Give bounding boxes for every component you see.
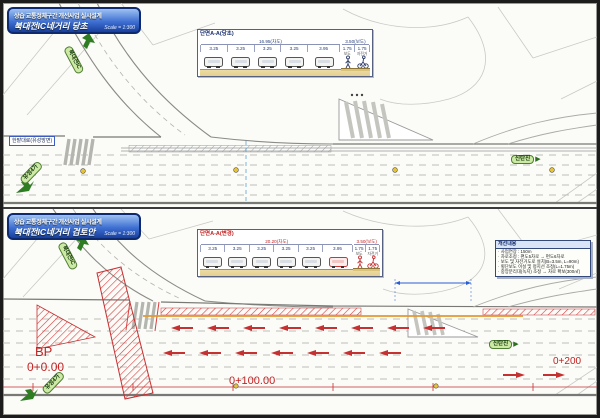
new-lane-car-icon	[329, 257, 348, 267]
signal-heads-icon	[351, 94, 363, 96]
arrow-right-icon: ▶	[513, 341, 518, 348]
total-dimensions: 16.95(차도) 3.50(보도)	[200, 38, 370, 45]
lane-width: 3.25	[224, 245, 248, 252]
blue-dimension	[395, 279, 471, 301]
station-end: 0+200	[553, 357, 581, 367]
red-centerline	[3, 383, 597, 391]
station-bp-value: 0+0.00	[27, 361, 64, 373]
walk-width: 1.75 보도	[352, 245, 366, 252]
car-icon	[252, 257, 271, 267]
green-arrow-ramp-icon	[82, 33, 95, 49]
lane-width: 3.25	[280, 45, 307, 52]
pedestrian-icon	[356, 255, 364, 269]
median-closure-hatch	[97, 267, 153, 399]
channelization-wedge-hatch	[37, 305, 95, 349]
walk-width: 1.75 보도	[339, 45, 354, 52]
lane-width: 3.25	[249, 245, 273, 252]
walk-sub-label: 보도	[340, 52, 354, 56]
scale-label: Scale = 1:300	[104, 25, 135, 31]
slip-lane-right	[473, 277, 597, 307]
road-name-label: 한밭대로(유성방면)	[9, 136, 55, 146]
title-block-original: 상습 교통정체구간 개선사업 실시설계 북대전IC네거리 당초 Scale = …	[7, 7, 141, 34]
car-icon	[204, 57, 223, 67]
walk-width: 1.75 자전거	[365, 245, 380, 252]
direction-sign-sintanjin: 신탄진 ▶	[511, 155, 541, 164]
bicycle-icon	[367, 255, 379, 269]
lane-lines	[3, 155, 597, 195]
note-item: 중앙분리대(녹지) 조정 → 차로 확보(300㎡)	[496, 269, 590, 274]
station-bp-label: BP	[35, 345, 52, 358]
scale-label: Scale = 1:300	[104, 231, 135, 237]
panel-original: 상습 교통정체구간 개선사업 실시설계 북대전IC네거리 당초 Scale = …	[3, 3, 597, 207]
walk-sub-label: 자전거	[366, 252, 379, 256]
section-ground	[200, 69, 370, 76]
lane-width: 3.25	[273, 245, 297, 252]
car-icon	[258, 57, 277, 67]
section-title: 단면A-A(당초)	[200, 31, 370, 38]
arrow-right-icon: ▶	[535, 156, 540, 163]
drawing-sheet: 상습 교통정체구간 개선사업 실시설계 북대전IC네거리 당초 Scale = …	[0, 0, 600, 418]
project-title: 상습 교통정체구간 개선사업 실시설계	[14, 217, 134, 226]
lane-dimensions: 3.25 3.25 3.25 3.25 3.95 1.75 보도 1.75 자전…	[200, 45, 370, 52]
cross-section-original: 단면A-A(당초) 16.95(차도) 3.50(보도) 3.25 3.25 3…	[197, 29, 373, 77]
car-icon	[203, 257, 222, 267]
lane-width: 3.25	[200, 45, 227, 52]
panel-review: 상습 교통정체구간 개선사업 실시설계 북대전IC네거리 검토안 Scale =…	[3, 209, 597, 413]
lane-width: 3.25	[200, 245, 224, 252]
car-icon	[277, 257, 296, 267]
walk-sub-label: 보도	[353, 252, 366, 256]
car-icon	[228, 257, 247, 267]
car-icon	[285, 57, 304, 67]
widening-strip-hatch	[161, 308, 361, 315]
station-mid: 0+100.00	[229, 376, 275, 387]
title-block-review: 상습 교통정체구간 개선사업 실시설계 북대전IC네거리 검토안 Scale =…	[7, 213, 141, 240]
section-title: 단면A-A(변경)	[200, 231, 380, 238]
walk-width: 1.75 자전거	[354, 45, 370, 52]
walk-sub-label: 자전거	[355, 52, 369, 56]
lane-dimensions: 3.25 3.25 3.25 3.25 3.25 3.95 1.75 보도 1.…	[200, 245, 380, 252]
bicycle-icon	[357, 55, 369, 69]
widening-strip-hatch-right	[483, 309, 595, 315]
slip-lane-right	[473, 113, 597, 144]
lane-width: 3.95	[307, 45, 339, 52]
station-markers	[81, 168, 555, 174]
car-icon	[315, 57, 334, 67]
car-icon	[231, 57, 250, 67]
lane-width: 3.25	[298, 245, 322, 252]
lane-width: 3.95	[322, 245, 352, 252]
lane-width: 3.25	[254, 45, 281, 52]
lane-width: 3.25	[227, 45, 254, 52]
total-dimensions: 20.20(차도) 3.50(보도)	[200, 238, 380, 245]
section-ground	[200, 269, 380, 276]
car-icon	[302, 257, 321, 267]
notes-title: 개선내용	[496, 241, 590, 249]
red-lane-arrows	[163, 325, 565, 378]
project-title: 상습 교통정체구간 개선사업 실시설계	[14, 11, 134, 20]
pedestrian-icon	[344, 55, 352, 69]
median-hatch	[129, 146, 331, 153]
improvement-notes-box: 개선내용 사업연장 : 150m 차로조정 : 편도5차로 → 편도6차로 보도…	[495, 240, 591, 277]
crosswalk-left	[65, 139, 93, 165]
cross-section-review: 단면A-A(변경) 20.20(차도) 3.50(보도) 3.25 3.25 3…	[197, 229, 383, 277]
direction-sign-sintanjin: 신탄진 ▶	[489, 340, 519, 349]
